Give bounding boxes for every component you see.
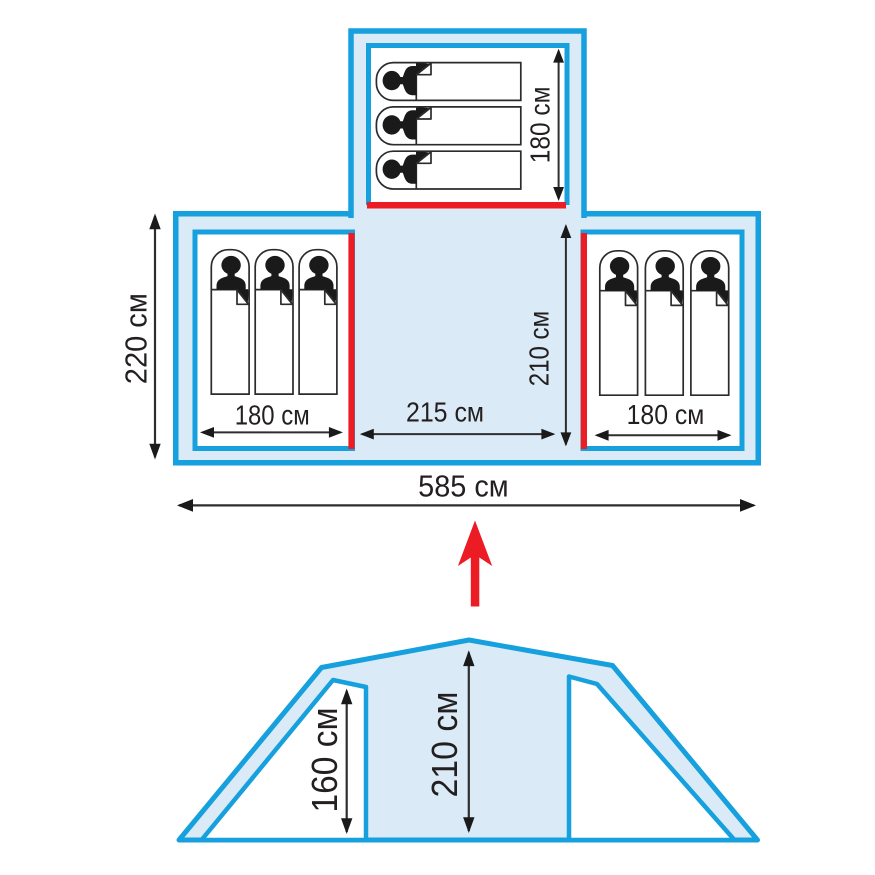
svg-text:180 см: 180 см bbox=[235, 400, 310, 431]
svg-text:180 см: 180 см bbox=[627, 399, 705, 430]
svg-text:215 см: 215 см bbox=[406, 397, 484, 428]
svg-text:210 см: 210 см bbox=[424, 692, 465, 798]
svg-text:160 см: 160 см bbox=[304, 708, 345, 813]
svg-text:180 см: 180 см bbox=[525, 87, 556, 164]
svg-text:210 см: 210 см bbox=[524, 311, 555, 386]
svg-text:585 см: 585 см bbox=[418, 469, 509, 504]
svg-text:220 см: 220 см bbox=[119, 293, 154, 384]
